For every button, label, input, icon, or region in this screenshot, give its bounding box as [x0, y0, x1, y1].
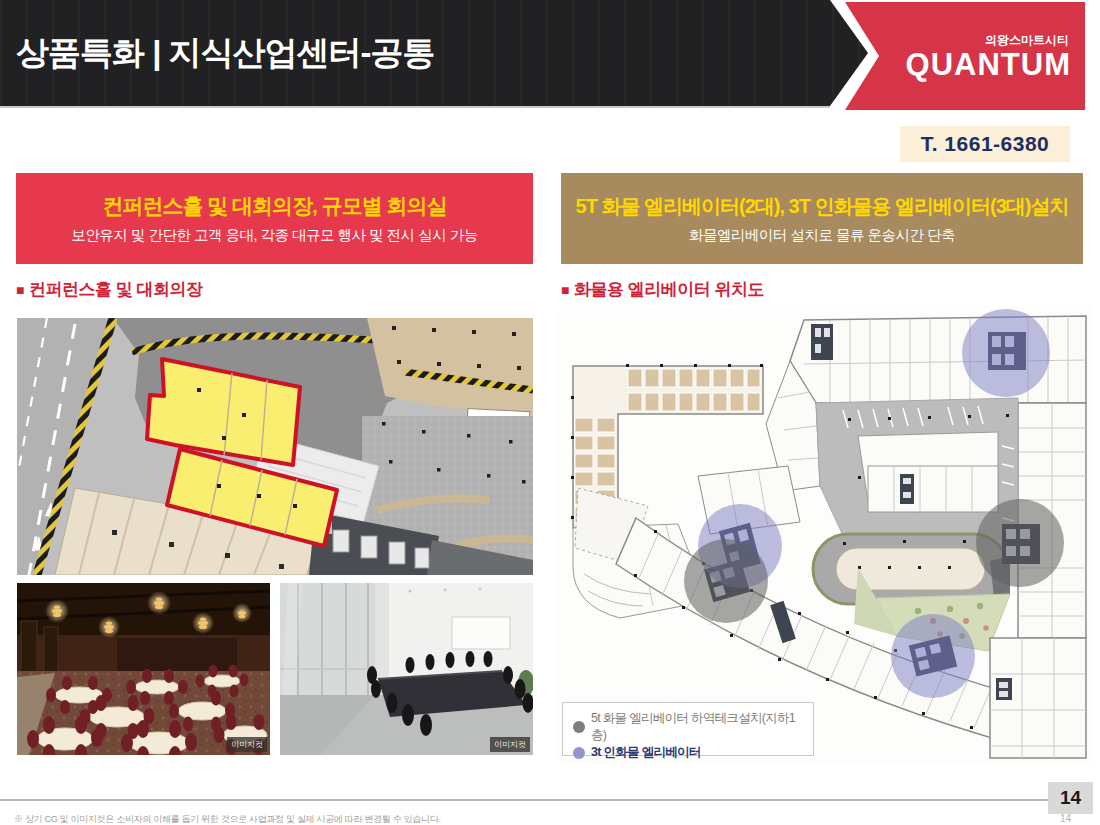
- slide: 상품특화 | 지식산업센터-공통 의왕스마트시티 QUANTUM T. 1661…: [0, 0, 1100, 825]
- freight-elevator-floor-plan-svg: [558, 306, 1092, 764]
- conference-feature-banner: 컨퍼런스홀 및 대회의장, 규모별 회의실 보안유지 및 간단한 고객 응대, …: [16, 173, 533, 264]
- purple-dot-icon: [573, 747, 585, 759]
- section-bullet-icon: ■: [561, 282, 569, 298]
- meeting-room-photo: 이미지컷: [280, 583, 533, 755]
- marker-3t-elevator: [962, 309, 1050, 397]
- header-banner: 상품특화 | 지식산업센터-공통: [0, 0, 868, 106]
- header-underline: [0, 106, 830, 108]
- footer-divider: [0, 799, 1048, 801]
- brand-logo: 의왕스마트시티 QUANTUM: [845, 2, 1085, 110]
- gray-dot-icon: [573, 721, 585, 733]
- elevator-legend: 5t 화물 엘리베이터 하역테크설치(지하1층) 3t 인화물 엘리베이터: [562, 702, 814, 756]
- image-credit-tag: 이미지컷: [490, 737, 530, 752]
- legend-label-3t: 3t 인화물 엘리베이터: [591, 744, 701, 761]
- conference-banner-subtitle: 보안유지 및 간단한 고객 응대, 각종 대규모 행사 및 전시 실시 가능: [71, 226, 477, 245]
- disclaimer-text: ※ 상기 CG 및 이미지컷은 소비자의 이해를 돕기 위한 것으로 사업과정 …: [14, 813, 441, 825]
- elevator-feature-banner: 5T 화물 엘리베이터(2대), 3T 인화물용 엘리베이터(3대)설치 화물엘…: [561, 173, 1083, 264]
- meeting-room-photo-svg: [280, 583, 533, 755]
- image-credit-tag: 이미지컷: [227, 737, 267, 752]
- conference-banner-title: 컨퍼런스홀 및 대회의장, 규모별 회의실: [102, 192, 446, 220]
- elevator-section-heading: ■화물용 엘리베이터 위치도: [561, 278, 764, 301]
- conference-section-heading: ■컨퍼런스홀 및 대회의장: [16, 278, 202, 301]
- conference-floor-plan-image: [17, 318, 533, 575]
- legend-label-5t: 5t 화물 엘리베이터 하역테크설치(지하1층): [591, 710, 803, 744]
- brand-name: QUANTUM: [906, 49, 1071, 81]
- page-number-box: 14: [1048, 782, 1093, 814]
- legend-item-5t: 5t 화물 엘리베이터 하역테크설치(지하1층): [573, 710, 803, 744]
- phone-badge: T. 1661-6380: [900, 126, 1070, 162]
- section-bullet-icon: ■: [16, 282, 24, 298]
- conference-section-title: 컨퍼런스홀 및 대회의장: [29, 280, 202, 299]
- marker-3t-elevator: [891, 614, 975, 698]
- inner-rooms: [868, 466, 998, 512]
- page-title: 상품특화 | 지식산업센터-공통: [0, 31, 435, 76]
- banquet-hall-photo: 이미지컷: [17, 583, 270, 755]
- elevator-section-title: 화물용 엘리베이터 위치도: [574, 280, 764, 299]
- elevator-banner-title: 5T 화물 엘리베이터(2대), 3T 인화물용 엘리베이터(3대)설치: [576, 193, 1069, 220]
- conference-floor-plan-svg: [17, 318, 533, 575]
- building-bottom-right: [990, 638, 1086, 758]
- page-number-faded: 14: [1060, 813, 1071, 824]
- legend-item-3t: 3t 인화물 엘리베이터: [573, 744, 803, 761]
- marker-5t-elevator: [976, 499, 1064, 587]
- elevator-banner-subtitle: 화물엘리베이터 설치로 물류 운송시간 단축: [689, 226, 955, 245]
- freight-elevator-floor-plan-image: [558, 306, 1092, 764]
- marker-5t-elevator: [684, 539, 768, 623]
- banquet-hall-photo-svg: [17, 583, 270, 755]
